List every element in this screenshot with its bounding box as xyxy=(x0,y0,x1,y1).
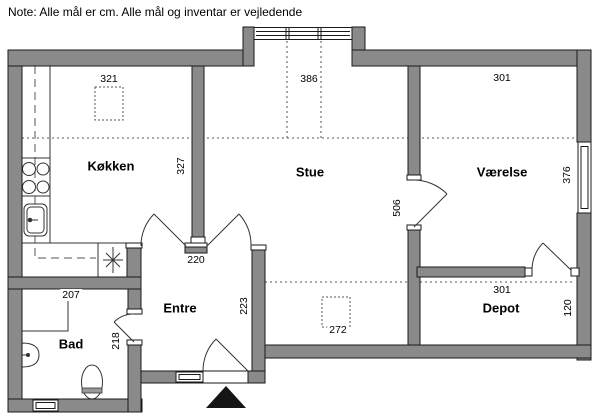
toilet-icon xyxy=(82,365,103,399)
wall-living-bedroom-lower xyxy=(408,230,420,345)
wall-bedroom-storage xyxy=(417,267,525,277)
wall-outer-top-left xyxy=(8,50,247,66)
measure-living-marker: 272 xyxy=(327,324,349,336)
wall-outer-left xyxy=(8,50,22,412)
stove-icon xyxy=(23,163,50,194)
measure-entry-depth: 223 xyxy=(238,297,250,315)
wall-bay-left xyxy=(243,27,254,66)
room-label-entry: Entre xyxy=(163,301,196,316)
marker-box-kitchen xyxy=(95,87,123,120)
measure-bath-width: 207 xyxy=(60,289,82,301)
jamb-cap xyxy=(251,245,266,250)
jamb-cap xyxy=(407,225,421,230)
appliance-star-icon xyxy=(103,247,123,273)
room-label-kitchen: Køkken xyxy=(88,159,135,174)
bath-vent-icon xyxy=(33,400,58,411)
entry-window-icon xyxy=(176,372,203,382)
measure-storage-width: 301 xyxy=(493,284,511,296)
floorplan-page: Note: Alle mål er cm. Alle mål og invent… xyxy=(0,0,600,419)
storage-door-icon xyxy=(532,243,571,270)
entrance-threshold xyxy=(203,371,248,383)
room-label-bath: Bad xyxy=(59,337,84,352)
measure-living-width: 386 xyxy=(300,73,318,85)
kitchen-sink-icon xyxy=(24,204,47,236)
jamb-cap xyxy=(126,243,142,248)
wall-outer-bottom-right xyxy=(260,345,591,358)
wall-living-bedroom-upper xyxy=(408,66,420,175)
living-door-icon xyxy=(207,214,251,246)
jamb-cap xyxy=(407,175,421,180)
measure-kitchen-depth: 327 xyxy=(175,157,187,175)
wall-bath-east-upper xyxy=(128,289,141,309)
jamb-cap xyxy=(191,237,205,243)
hand-basin-icon xyxy=(22,343,39,367)
marker-box-living xyxy=(322,297,350,327)
kitchen-door-icon xyxy=(141,214,186,246)
measure-living-depth: 506 xyxy=(391,199,403,217)
plan-note: Note: Alle mål er cm. Alle mål og invent… xyxy=(8,5,302,19)
wall-entry-east xyxy=(252,250,265,383)
wall-outer-right-lower xyxy=(577,213,591,360)
jamb-cap xyxy=(127,340,142,345)
bedroom-door-icon xyxy=(414,180,447,227)
jamb-cap xyxy=(185,243,207,247)
measure-storage-depth: 120 xyxy=(562,299,574,317)
measure-bedroom-depth: 376 xyxy=(561,166,573,184)
measure-bedroom-width: 301 xyxy=(493,72,511,84)
room-label-living: Stue xyxy=(296,165,324,180)
wall-kitchen-living-divider xyxy=(192,66,204,237)
bedroom-window-icon xyxy=(578,142,591,213)
wall-outer-top-right xyxy=(352,50,591,66)
counter-corner-icon xyxy=(22,243,98,277)
measure-bath-door: 218 xyxy=(110,332,122,350)
room-label-storage: Depot xyxy=(483,301,520,316)
entrance-arrow-icon xyxy=(206,386,246,408)
room-label-bedroom: Værelse xyxy=(477,165,528,180)
wall-bath-east-lower xyxy=(128,345,141,412)
wall-kitchen-east xyxy=(127,248,141,277)
jamb-cap xyxy=(127,309,142,314)
measure-kitchen-width: 321 xyxy=(100,73,118,85)
bay-window-icon xyxy=(254,28,352,40)
measure-entry-width: 220 xyxy=(187,254,205,266)
floorplan-drawing xyxy=(0,0,600,419)
wall-kitchen-south xyxy=(8,277,141,289)
jamb-cap xyxy=(525,268,532,276)
wall-outer-right-upper xyxy=(577,50,591,142)
wall-bath-south xyxy=(8,399,142,412)
entrance-door-icon xyxy=(203,339,248,371)
jamb-cap xyxy=(571,268,579,276)
